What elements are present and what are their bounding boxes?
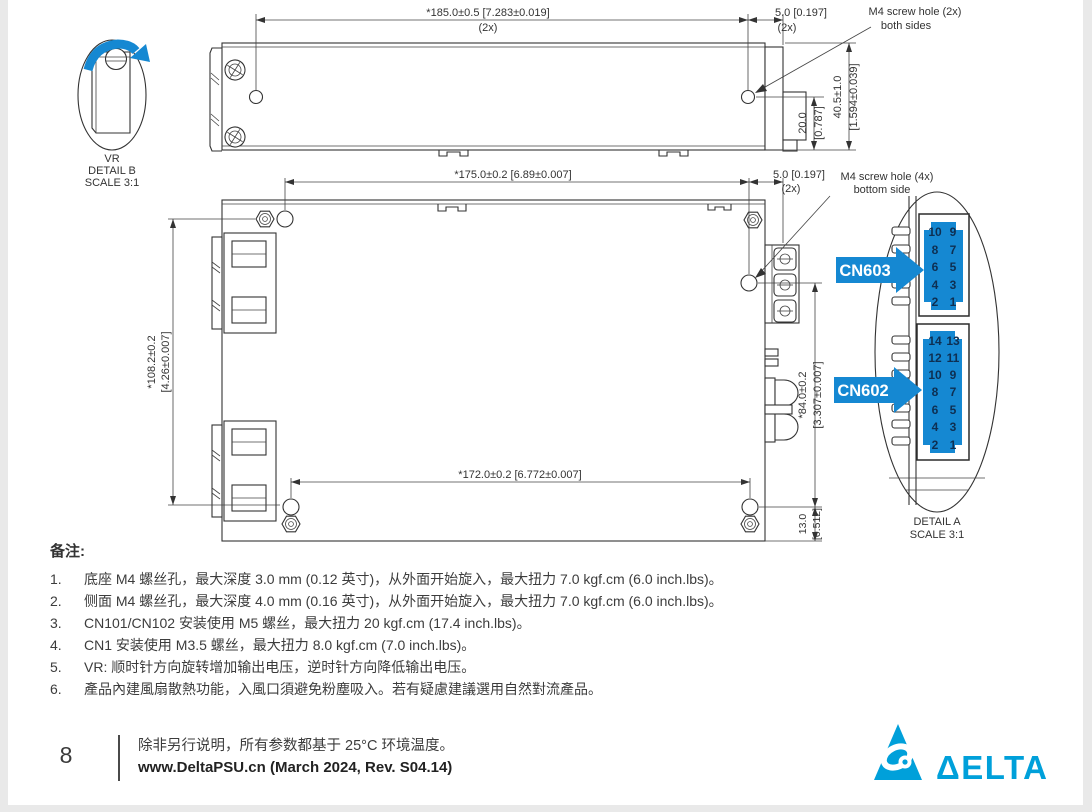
detail-b-name: VR: [104, 153, 119, 165]
cn602-pin: 11: [947, 351, 960, 365]
notes-title: 备注:: [50, 540, 890, 561]
cn603-pin: 4: [932, 278, 939, 292]
note-item: 2.侧面 M4 螺丝孔，最大深度 4.0 mm (0.16 英寸)，从外面开始旋…: [50, 590, 890, 612]
terminal-block-2: [212, 421, 276, 521]
input-terminal-block: [765, 245, 799, 323]
note-item: 5.VR: 顺时针方向旋转增加输出电压，逆时针方向降低输出电压。: [50, 656, 890, 678]
cn602-pin: 13: [946, 334, 960, 348]
dim-side-length-qty: (2x): [479, 22, 498, 34]
cn602-pin: 9: [950, 368, 957, 382]
cn602-pin: 7: [950, 385, 957, 399]
cn602-pin: 10: [928, 368, 942, 382]
dim-side-h2-in: [1.594±0.039]: [848, 63, 860, 130]
footer-source: www.DeltaPSU.cn (March 2024, Rev. S04.14…: [138, 757, 454, 778]
bottom-view-drawing: [212, 200, 799, 541]
dim-hole-span: *172.0±0.2 [6.772±0.007]: [458, 469, 581, 481]
cn602-pin: 2: [932, 438, 939, 452]
mechanical-drawing: VR DETAIL B SCALE 3:1: [8, 0, 1091, 545]
note-item: 6.產品內建風扇散熱功能，入風口須避免粉塵吸入。若有疑慮建議選用自然對流產品。: [50, 678, 890, 700]
detail-a-drawing: 10 9 8 7 6 5 4 3 2 1 14 13 12 11: [875, 192, 999, 541]
detail-b-caption: DETAIL B: [88, 165, 136, 177]
dim-bottom-height-in: [4.26±0.007]: [160, 331, 172, 392]
delta-wordmark: ΔELTA: [936, 749, 1048, 786]
bottom-screw-hole-bl: [283, 499, 299, 515]
dim-bottom-length: *175.0±0.2 [6.89±0.007]: [454, 169, 571, 181]
detail-b-scale: SCALE 3:1: [85, 177, 139, 189]
datasheet-page: { "colors": { "accent_blue": "#1588d2", …: [0, 0, 1092, 812]
detail-b-drawing: VR DETAIL B SCALE 3:1: [78, 40, 150, 189]
footer-text: 除非另行说明，所有参数都基于 25°C 环境温度。 www.DeltaPSU.c…: [138, 736, 454, 778]
footer-note: 除非另行说明，所有参数都基于 25°C 环境温度。: [138, 736, 454, 757]
cn602-pin: 5: [950, 403, 957, 417]
side-screw-note-2: both sides: [881, 20, 932, 32]
notes-section: 备注: 1.底座 M4 螺丝孔，最大深度 3.0 mm (0.12 英寸)，从外…: [50, 540, 890, 700]
bottom-screw-hole-tr: [741, 275, 757, 291]
side-screw-hole-left: [250, 91, 263, 104]
delta-logo: ΔELTA: [860, 712, 1085, 804]
bottom-screw-note-2: bottom side: [854, 184, 911, 196]
dim-bottom-in: [0.512]: [811, 508, 823, 540]
delta-logo-mark: [874, 724, 922, 780]
dim-side-offset: 5.0 [0.197]: [775, 7, 827, 19]
detail-a-scale: SCALE 3:1: [910, 529, 964, 541]
dim-bottom-height-mm: *108.2±0.2: [146, 335, 158, 388]
note-item: 3.CN101/CN102 安装使用 M5 螺丝，最大扭力 20 kgf.cm …: [50, 612, 890, 634]
cn603-connector: 10 9 8 7 6 5 4 3 2 1: [919, 214, 969, 316]
cn602-pin: 12: [928, 351, 942, 365]
note-item: 1.底座 M4 螺丝孔，最大深度 3.0 mm (0.12 英寸)，从外面开始旋…: [50, 568, 890, 590]
dim-side-h1-mm: 20.0: [797, 112, 809, 133]
cn603-pin: 9: [950, 225, 957, 239]
cn602-pin: 3: [950, 420, 957, 434]
dim-bottom-offset: 5.0 [0.197]: [773, 169, 825, 181]
page-number: 8: [44, 742, 88, 769]
dim-side-h2-mm: 40.5±1.0: [832, 76, 844, 119]
terminal-block-1: [212, 233, 276, 333]
cn603-pin: 3: [950, 278, 957, 292]
side-screw-hole-right: [742, 91, 755, 104]
dim-side-h1-in: [0.787]: [813, 106, 825, 140]
cn603-pin: 10: [928, 225, 942, 239]
dim-right-mm: *84.0±0.2: [797, 371, 809, 418]
dim-bottom-mm: 13.0: [797, 514, 809, 535]
cn602-label: CN602: [837, 382, 888, 400]
dim-side-offset-qty: (2x): [778, 22, 797, 34]
cn603-pin: 7: [950, 243, 957, 257]
page-background: VR DETAIL B SCALE 3:1: [8, 0, 1083, 805]
cn603-pin: 5: [950, 260, 957, 274]
cn603-label: CN603: [839, 262, 890, 280]
footer-divider: [118, 735, 120, 781]
bottom-screw-note-1: M4 screw hole (4x): [841, 171, 934, 183]
cn602-pin: 8: [932, 385, 939, 399]
cn602-pin: 14: [928, 334, 942, 348]
dim-right-in: [3.307±0.007]: [812, 361, 824, 428]
cn602-pin: 1: [950, 438, 957, 452]
dim-bottom-offset-qty: (2x): [782, 183, 801, 195]
detail-a-caption: DETAIL A: [913, 516, 961, 528]
cn602-pin: 6: [932, 403, 939, 417]
cn603-pin: 2: [932, 295, 939, 309]
cn603-pin: 6: [932, 260, 939, 274]
cn603-pin: 8: [932, 243, 939, 257]
side-screw-note-1: M4 screw hole (2x): [869, 6, 962, 18]
bottom-screw-hole-tl: [277, 211, 293, 227]
cn603-pin: 1: [950, 295, 957, 309]
note-item: 4.CN1 安装使用 M3.5 螺丝，最大扭力 8.0 kgf.cm (7.0 …: [50, 634, 890, 656]
cn602-pin: 4: [932, 420, 939, 434]
side-view-drawing: [210, 43, 806, 156]
dim-side-length: *185.0±0.5 [7.283±0.019]: [426, 7, 549, 19]
cn602-connector: 14 13 12 11 10 9 8 7 6 5 4 3 2 1: [917, 324, 969, 460]
output-connectors: [765, 378, 798, 442]
bottom-screw-hole-br: [742, 499, 758, 515]
